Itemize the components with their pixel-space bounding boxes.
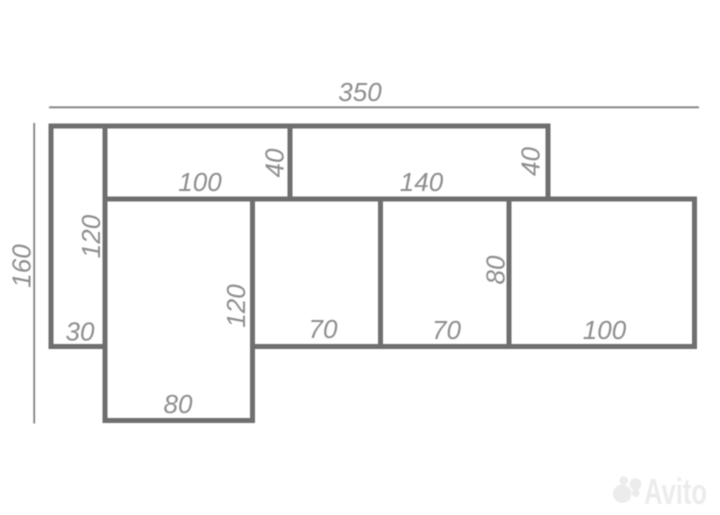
svg-text:40: 40: [516, 147, 546, 176]
svg-text:350: 350: [338, 77, 382, 107]
svg-text:120: 120: [76, 214, 106, 258]
svg-text:70: 70: [309, 314, 338, 344]
svg-text:120: 120: [221, 284, 251, 328]
svg-text:160: 160: [7, 244, 37, 288]
svg-text:140: 140: [400, 167, 444, 197]
svg-text:100: 100: [178, 167, 222, 197]
svg-text:70: 70: [432, 315, 461, 345]
svg-text:40: 40: [260, 148, 290, 177]
svg-text:80: 80: [164, 389, 193, 419]
svg-text:Avito: Avito: [644, 471, 707, 512]
svg-text:30: 30: [66, 317, 95, 347]
svg-text:100: 100: [583, 315, 627, 345]
svg-text:80: 80: [481, 255, 511, 284]
